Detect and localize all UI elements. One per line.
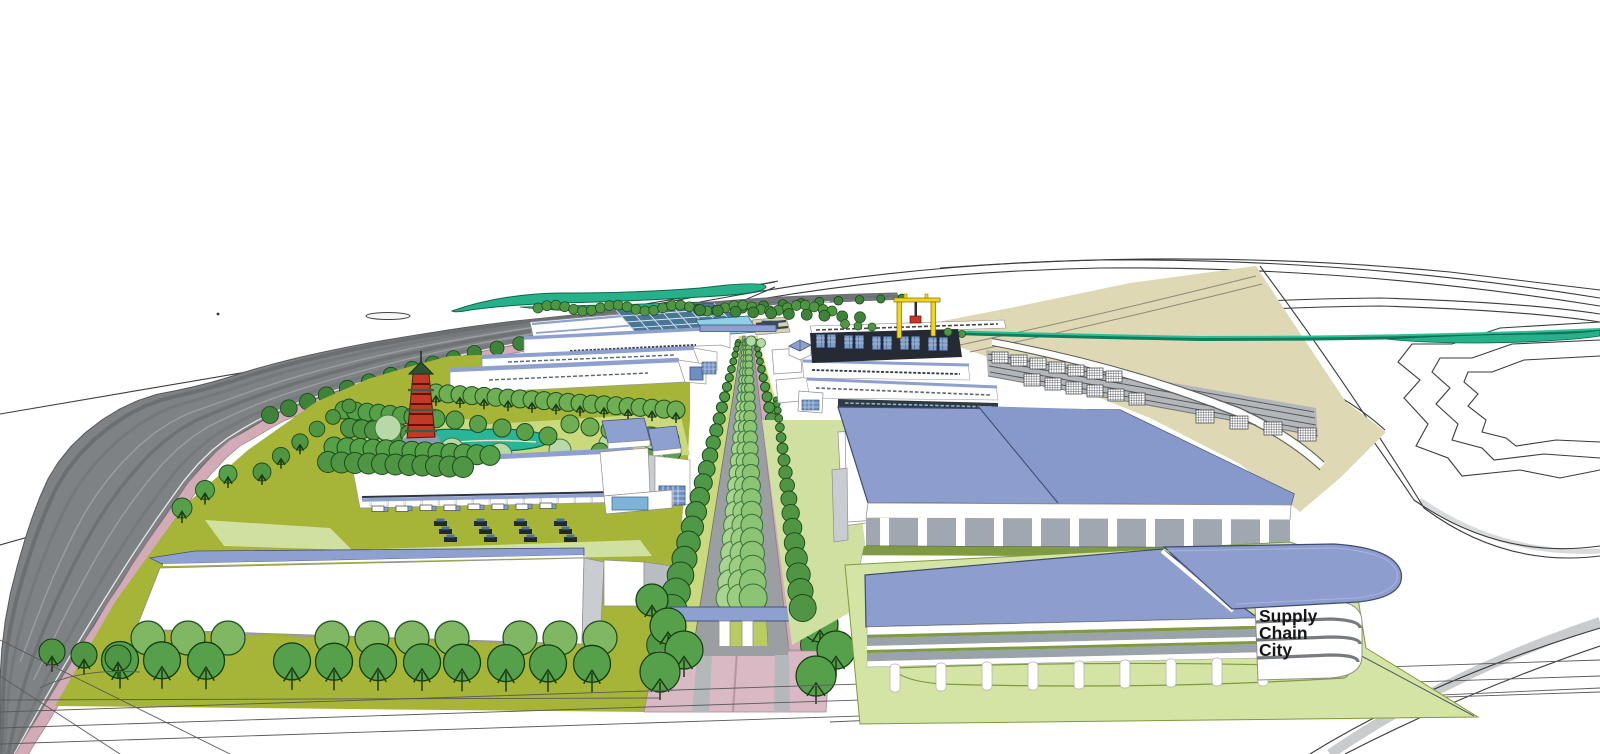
svg-text:City: City [1259, 640, 1292, 660]
